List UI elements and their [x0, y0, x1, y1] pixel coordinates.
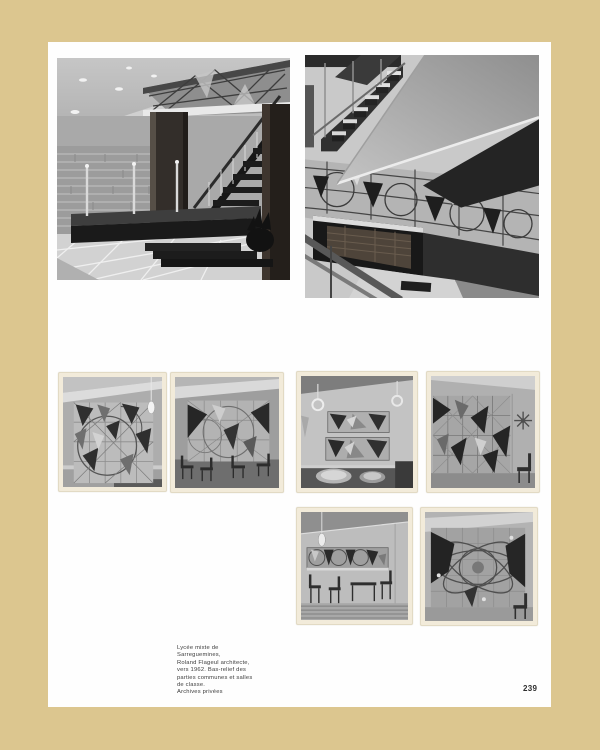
scanned-book-spread: { "colors": { "backdrop": "#dcc68f", "pa… [0, 0, 600, 750]
caption-line: de classe. [177, 682, 287, 689]
caption-line: Sarreguemines, [177, 652, 287, 659]
caption-line: Archives privées [177, 689, 287, 696]
snapshot-print-orbital-mural [420, 507, 538, 626]
snapshot-print-grid-starburst [426, 371, 540, 493]
snapshot-print-classroom-band [296, 507, 413, 625]
dark-wall [270, 104, 290, 280]
mural-grid-circle [74, 403, 153, 484]
mural-wings [188, 401, 270, 462]
mural-band [307, 548, 388, 571]
snapshot-print-mural-circle [58, 372, 167, 492]
caption-line: vers 1962. Bas-relief des [177, 667, 287, 674]
caption-line: Roland Flageul architecte, [177, 660, 287, 667]
book-page: Lycée mixte de Sarreguemines, Roland Fla… [48, 42, 551, 707]
photo-caption: Lycée mixte de Sarreguemines, Roland Fla… [177, 645, 287, 697]
photo-stairwell-mural [305, 55, 539, 298]
page-number: 239 [523, 684, 543, 693]
snapshot-image-5 [301, 512, 408, 620]
orbital-mural [431, 528, 525, 607]
snapshot-image-1 [63, 377, 162, 487]
snapshot-print-kitchen-panels [296, 371, 418, 493]
caption-line: parties communes et salles [177, 675, 287, 682]
striped-floor [301, 603, 408, 620]
snapshot-print-mural-chairs [170, 372, 284, 493]
photo-lobby-staircase-image [57, 58, 290, 280]
mural-grid-x [433, 396, 510, 473]
snapshot-image-3 [301, 376, 413, 488]
snapshot-image-6 [425, 512, 533, 621]
snapshot-image-4 [431, 376, 535, 488]
caption-line: Lycée mixte de [177, 645, 287, 652]
snapshot-image-2 [175, 377, 279, 488]
photo-stairwell-image [305, 55, 539, 298]
kitchen-pots [301, 461, 413, 488]
photo-lobby-staircase [57, 58, 290, 280]
